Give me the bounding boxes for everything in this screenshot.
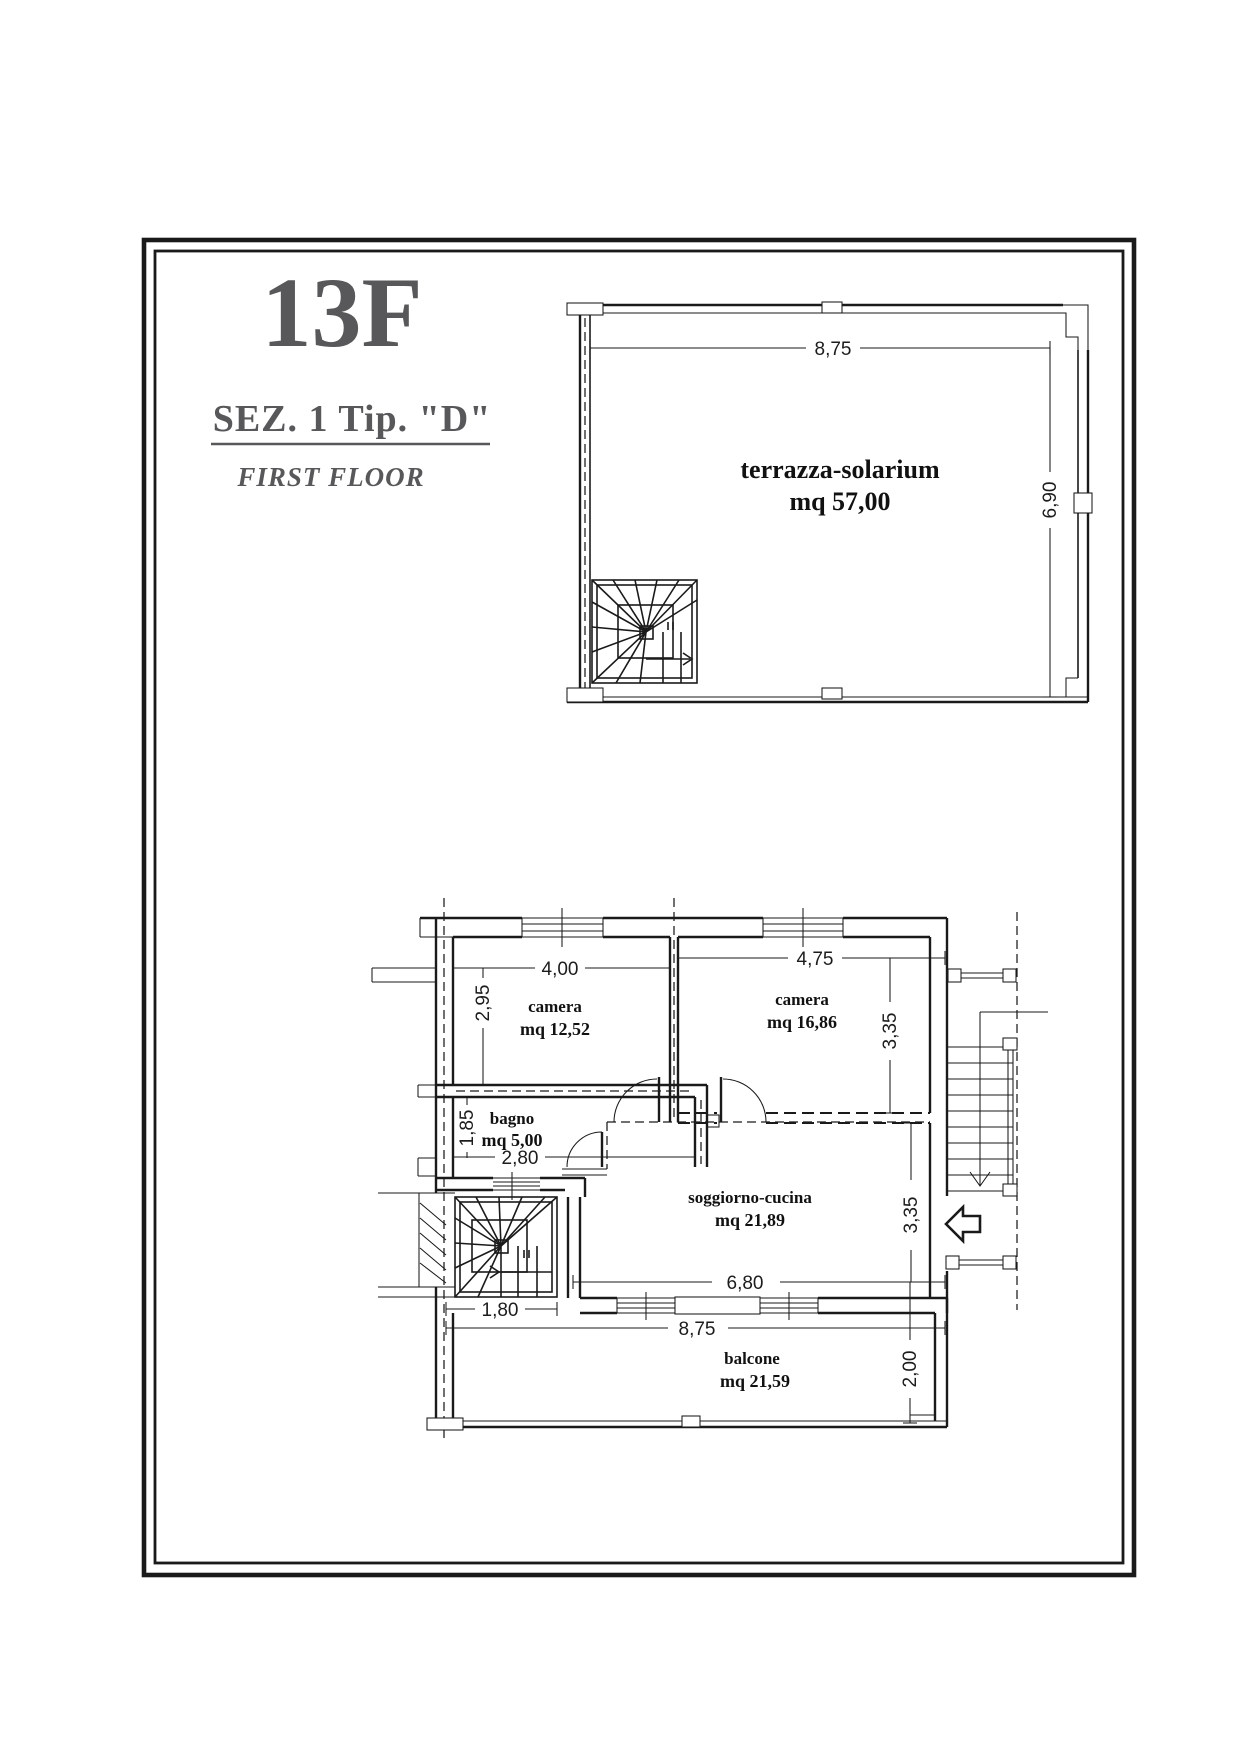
floor-label: FIRST FLOOR bbox=[236, 462, 424, 492]
stair-direction-arrow-down bbox=[970, 1047, 990, 1186]
svg-text:4,75: 4,75 bbox=[797, 949, 834, 970]
soggiorno-area: mq 21,89 bbox=[715, 1210, 785, 1230]
door-camera1 bbox=[614, 1077, 659, 1122]
apartment-right-wall bbox=[930, 918, 947, 1313]
dim-camera2-depth: 3,35 bbox=[880, 958, 901, 1113]
floorplan-sheet: 13F SEZ. 1 Tip. "D" FIRST FLOOR bbox=[0, 0, 1240, 1755]
terrace-winder-stair bbox=[592, 580, 697, 683]
terrace-dim-width-text: 8,75 bbox=[815, 339, 852, 360]
svg-text:1,80: 1,80 bbox=[482, 1300, 519, 1321]
neighbor-stair-hatch bbox=[378, 1193, 557, 1297]
dim-camera1-depth: 2,95 bbox=[473, 968, 494, 1085]
apartment-left-wall bbox=[372, 918, 463, 1430]
door-bagno bbox=[562, 1122, 607, 1175]
svg-text:2,95: 2,95 bbox=[473, 985, 494, 1022]
bagno-label: bagno bbox=[490, 1109, 534, 1128]
apartment-winder-stair bbox=[455, 1197, 557, 1297]
balcone-label: balcone bbox=[724, 1349, 780, 1368]
terrace-dim-depth: 6,90 bbox=[1040, 348, 1061, 697]
svg-text:1,85: 1,85 bbox=[457, 1110, 478, 1147]
terrace-room-label: terrazza-solarium bbox=[740, 455, 940, 484]
svg-text:3,35: 3,35 bbox=[901, 1197, 922, 1234]
svg-text:8,75: 8,75 bbox=[679, 1319, 716, 1340]
svg-text:6,80: 6,80 bbox=[727, 1273, 764, 1294]
camera-partition-wall bbox=[670, 937, 678, 1122]
svg-text:2,80: 2,80 bbox=[502, 1148, 539, 1169]
apartment-plan: camera mq 12,52 camera mq 16,86 bagno mq… bbox=[372, 898, 1048, 1438]
terrace-bottom-edge bbox=[567, 688, 1088, 702]
sheet-border bbox=[144, 240, 1134, 1575]
terrace-dim-depth-text: 6,90 bbox=[1040, 482, 1061, 519]
svg-text:2,00: 2,00 bbox=[900, 1351, 921, 1388]
dim-balcone-depth: 2,00 bbox=[900, 1282, 921, 1423]
soggiorno-bottom-wall bbox=[580, 1292, 947, 1320]
dim-soggiorno-depth: 3,35 bbox=[901, 1123, 922, 1282]
dim-camera1-width: 4,00 bbox=[453, 959, 670, 980]
dim-soggiorno-width: 6,80 bbox=[573, 1273, 945, 1294]
terrace-dim-width: 8,75 bbox=[590, 339, 1050, 360]
dim-bagno-width: 2,80 bbox=[453, 1148, 695, 1169]
dim-balcone-width: 8,75 bbox=[446, 1319, 945, 1340]
window-camera2 bbox=[763, 908, 843, 947]
window-camera1 bbox=[522, 908, 603, 947]
dim-stair-width: 1,80 bbox=[446, 1300, 557, 1321]
floorplan-drawing: 13F SEZ. 1 Tip. "D" FIRST FLOOR bbox=[0, 0, 1240, 1755]
camera2-label: camera bbox=[775, 990, 829, 1009]
balcone-walls bbox=[463, 1298, 947, 1427]
door-balcone bbox=[675, 1297, 760, 1314]
apartment-top-wall bbox=[420, 908, 947, 947]
entrance-arrow-icon bbox=[946, 1207, 980, 1241]
window-soggiorno-right bbox=[760, 1292, 818, 1320]
camera2-area: mq 16,86 bbox=[767, 1012, 837, 1032]
svg-text:4,00: 4,00 bbox=[542, 959, 579, 980]
window-bagno bbox=[493, 1172, 540, 1200]
dim-bagno-depth: 1,85 bbox=[457, 1097, 478, 1158]
hall-wall bbox=[607, 1113, 930, 1123]
door-camera2 bbox=[721, 1077, 766, 1122]
soggiorno-label: soggiorno-cucina bbox=[688, 1188, 812, 1207]
bagno-area: mq 5,00 bbox=[481, 1130, 542, 1150]
terrace-plan: 8,75 6,90 terrazza-solarium mq 57,00 bbox=[567, 302, 1092, 702]
camera1-label: camera bbox=[528, 997, 582, 1016]
soggiorno-left-wall bbox=[568, 1197, 580, 1298]
unit-code: 13F bbox=[261, 257, 422, 368]
balcone-area: mq 21,59 bbox=[720, 1371, 790, 1391]
camera1-area: mq 12,52 bbox=[520, 1019, 590, 1039]
section-title: SEZ. 1 Tip. "D" bbox=[213, 398, 492, 440]
svg-text:3,35: 3,35 bbox=[880, 1013, 901, 1050]
terrace-right-wall bbox=[1066, 350, 1092, 702]
window-soggiorno-left bbox=[617, 1292, 675, 1320]
title-block: 13F SEZ. 1 Tip. "D" FIRST FLOOR bbox=[211, 257, 491, 492]
dim-camera2-width: 4,75 bbox=[678, 949, 945, 970]
terrace-room-area: mq 57,00 bbox=[789, 487, 890, 516]
